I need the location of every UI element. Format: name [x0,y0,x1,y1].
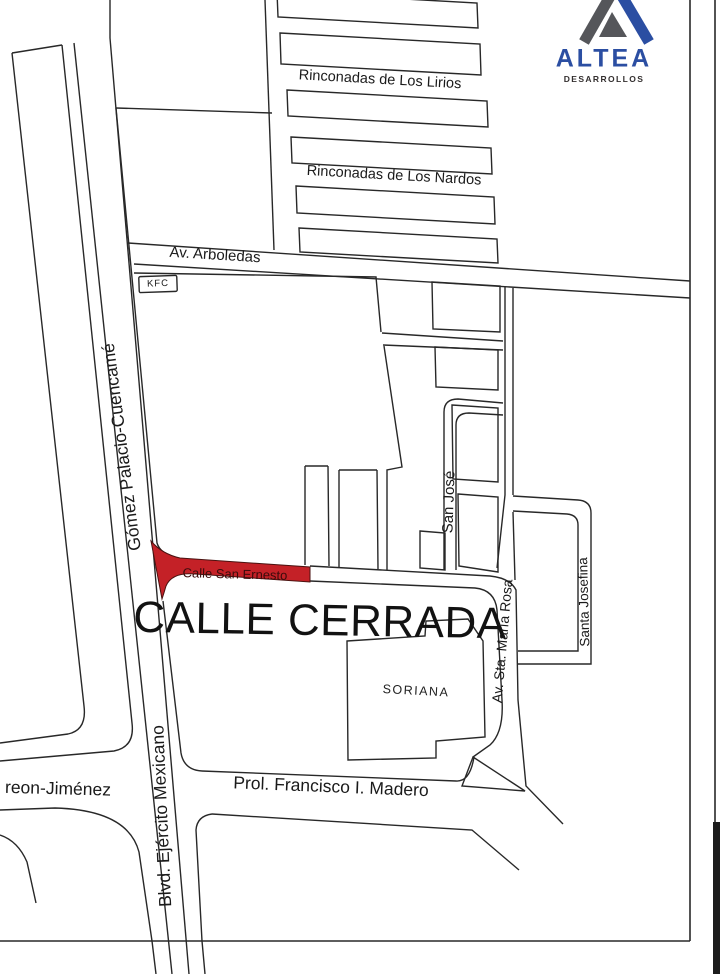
boulevard-road-lines [0,38,212,974]
grid-block-2 [435,347,498,390]
street-label-san-jose: San José [440,470,457,533]
parcel-strips [305,466,378,569]
san-jose-east-edge [456,413,503,570]
west-block-top-edge [12,45,62,53]
east-grid-blocks [420,282,500,572]
altea-logo-mark [584,0,649,42]
street-map-drawing [0,0,720,974]
street-label-calle-san-ernesto: Calle San Ernesto [182,566,287,582]
west-block-left-edge [0,53,84,743]
smr-east-edge-mid [513,512,515,580]
east-street-north-line [382,333,503,341]
traffic-triangle-island [462,757,525,791]
poi-label-kfc: KFC [147,279,169,289]
block-e1-bottom-edge [116,108,272,113]
street-label-torreon-jimenez: reon-Jiménez [5,779,111,799]
strip-notch-2 [339,470,378,569]
madero-south-edge [212,814,519,870]
altea-logo-wordmark: ALTEA [556,47,652,72]
rinconadas-blocks [277,0,498,263]
road-west-outer-south [0,808,156,974]
grid-block-5 [420,531,445,570]
street-label-santa-josefina: Santa Josefina [576,557,592,647]
superblock-top-right [134,273,381,332]
top-center-blocks [110,0,274,250]
west-block-outline [0,45,84,743]
superblock-east-edge [384,346,402,570]
closed-street-annotation: CALLE CERRADA [133,596,507,647]
road-east-edge-lower [196,814,212,974]
arboledas-south-edge [134,264,690,298]
rinconadas-bar-6 [299,228,498,263]
strip-notch-1 [305,466,329,566]
josefina-inner-edge [513,511,578,651]
rinconadas-bar-1 [277,0,478,28]
map-canvas: Rinconadas de Los Lirios Rinconadas de L… [0,0,720,974]
rinconadas-bar-5 [296,186,495,224]
grid-block-4 [458,494,498,572]
rinconadas-bar-3 [287,90,488,127]
road-southwest-stub [0,835,36,903]
page-edge-shadow [713,822,720,974]
vertical-street-line [265,0,274,250]
altea-logo-subtitle: DESARROLLOS [564,75,645,84]
grid-block-1 [432,282,500,332]
